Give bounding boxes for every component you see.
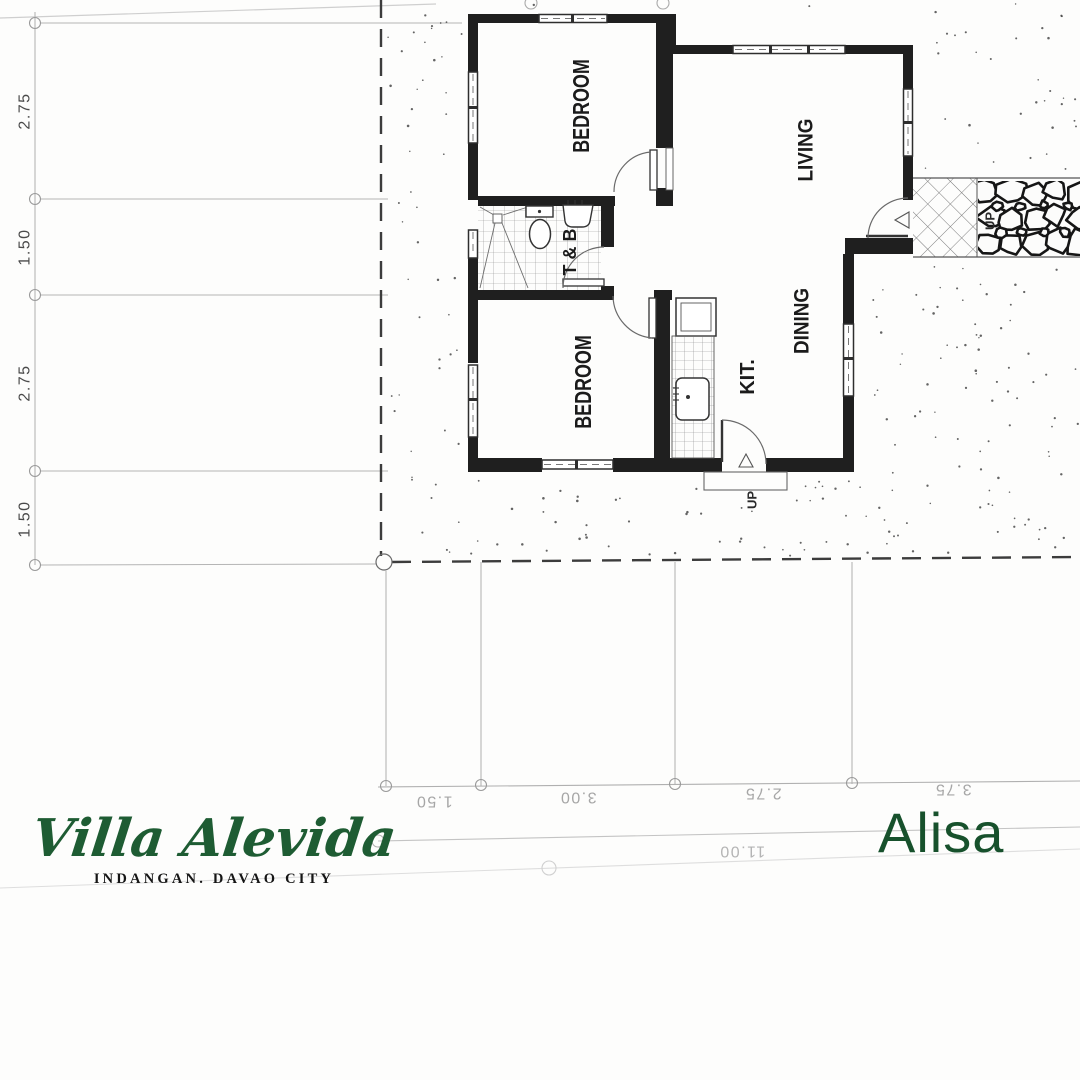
brand-location: INDANGAN. DAVAO CITY xyxy=(28,871,400,888)
refrigerator xyxy=(676,298,716,336)
window-tb-left xyxy=(469,230,478,258)
bottom-dimension-line xyxy=(378,781,1080,787)
door-bedroom2 xyxy=(613,296,656,338)
window-living-right xyxy=(904,89,913,156)
label-bedroom-1: BEDROOM xyxy=(569,59,595,153)
paper-edge-line xyxy=(0,4,436,18)
brand-logo: Villa Alevida INDANGAN. DAVAO CITY xyxy=(28,812,400,888)
window-bedroom2-left xyxy=(469,365,478,437)
porch: UP xyxy=(913,178,1080,257)
porch-lattice-floor xyxy=(913,178,977,257)
wall-bedroom1-living xyxy=(656,14,673,148)
window-living-top xyxy=(733,46,845,54)
toilet-bath-fixtures xyxy=(478,200,601,290)
kitchen-fixtures xyxy=(672,298,716,458)
kitchen-up-label: UP xyxy=(745,491,760,509)
dim-bottom-2: 2.75 xyxy=(744,785,781,802)
label-kitchen: KIT. xyxy=(737,359,759,395)
doors xyxy=(563,148,909,467)
dim-bottom-total: 11.00 xyxy=(719,843,765,860)
door-entrance xyxy=(866,198,909,238)
window-dining-right xyxy=(844,324,854,396)
door-kitchen xyxy=(722,420,766,467)
window-bedroom1-top xyxy=(539,15,607,23)
grid-junction-bubble xyxy=(376,554,392,570)
dim-left-0: 2.75 xyxy=(17,92,34,129)
dim-bottom-0: 1.50 xyxy=(415,793,452,810)
floor-plan-page: UP xyxy=(0,0,1080,1080)
label-bedroom-2: BEDROOM xyxy=(571,335,597,429)
grid-layer xyxy=(0,0,1080,888)
wall-tb-bedroom2 xyxy=(478,290,614,300)
kitchen-swing-marker xyxy=(739,454,753,467)
label-dining: DINING xyxy=(790,288,813,354)
wall-bedroom1-tb xyxy=(478,196,615,206)
unit-name: Alisa xyxy=(878,800,1004,865)
wall-tb-living xyxy=(601,206,614,247)
window-bedroom1-left xyxy=(469,72,478,143)
dim-bottom-3: 3.75 xyxy=(934,781,971,798)
label-living: LIVING xyxy=(794,119,817,182)
floor-plan-drawing: UP xyxy=(0,0,1080,1080)
door-bedroom1 xyxy=(614,148,673,192)
dim-left-3: 1.50 xyxy=(17,500,34,537)
kitchen-steps: UP xyxy=(704,472,787,509)
window-bedroom2-bottom xyxy=(542,460,613,469)
porch-up-label: UP xyxy=(983,212,998,230)
dim-bottom-1: 3.00 xyxy=(559,789,596,806)
dim-left-1: 1.50 xyxy=(17,228,34,265)
entrance-swing-marker xyxy=(895,212,909,228)
brand-name: Villa Alevida xyxy=(25,812,404,867)
label-toilet-bath: T & B xyxy=(560,229,580,276)
dim-left-2: 2.75 xyxy=(17,364,34,401)
kitchen-sink xyxy=(673,378,709,420)
